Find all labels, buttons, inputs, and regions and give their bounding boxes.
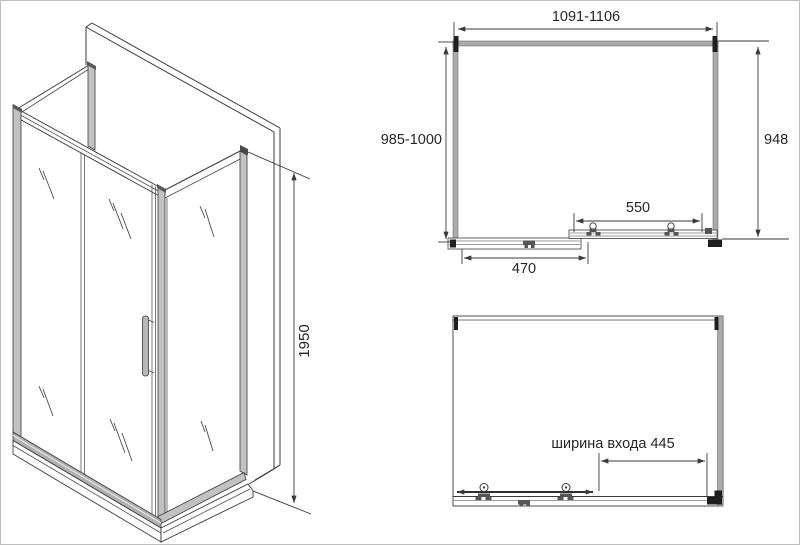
dim-depth-label: 985-1000 xyxy=(381,132,442,148)
dim-height-label: 1950 xyxy=(296,324,313,357)
wall-bracket-right xyxy=(713,36,718,52)
plan-frame xyxy=(453,36,718,243)
front-view: ширина входа 445 xyxy=(453,316,723,506)
plan-width-dimension: 1091-1106 xyxy=(454,9,717,38)
plan-side-dimension: 948 xyxy=(718,41,789,239)
plan-depth-dimension: 985-1000 xyxy=(381,42,453,242)
front-bracket-left xyxy=(454,317,458,330)
wall-bracket-left xyxy=(454,36,459,52)
entry-width-label: ширина входа 445 xyxy=(551,436,674,452)
technical-drawing-canvas: 1950 xyxy=(0,0,800,545)
isometric-view: 1950 xyxy=(13,23,313,542)
glass-shine-marks xyxy=(39,168,214,461)
plan-corner-bracket xyxy=(708,240,722,248)
front-frame xyxy=(453,316,723,506)
shower-enclosure-drawing: 1950 xyxy=(1,1,799,544)
dim-width-label: 1091-1106 xyxy=(552,9,620,25)
dim-fixed-label: 470 xyxy=(512,261,536,277)
plan-view: 1091-1106 985-1000 948 550 4 xyxy=(381,9,789,277)
back-wall xyxy=(86,23,280,484)
plan-fixed-rail xyxy=(448,238,581,249)
right-side-panel xyxy=(158,145,248,524)
dim-door-label: 550 xyxy=(626,200,650,216)
plan-sliding-rail xyxy=(569,223,722,247)
dim-side-label: 948 xyxy=(764,132,788,148)
front-bracket-right xyxy=(715,317,719,330)
